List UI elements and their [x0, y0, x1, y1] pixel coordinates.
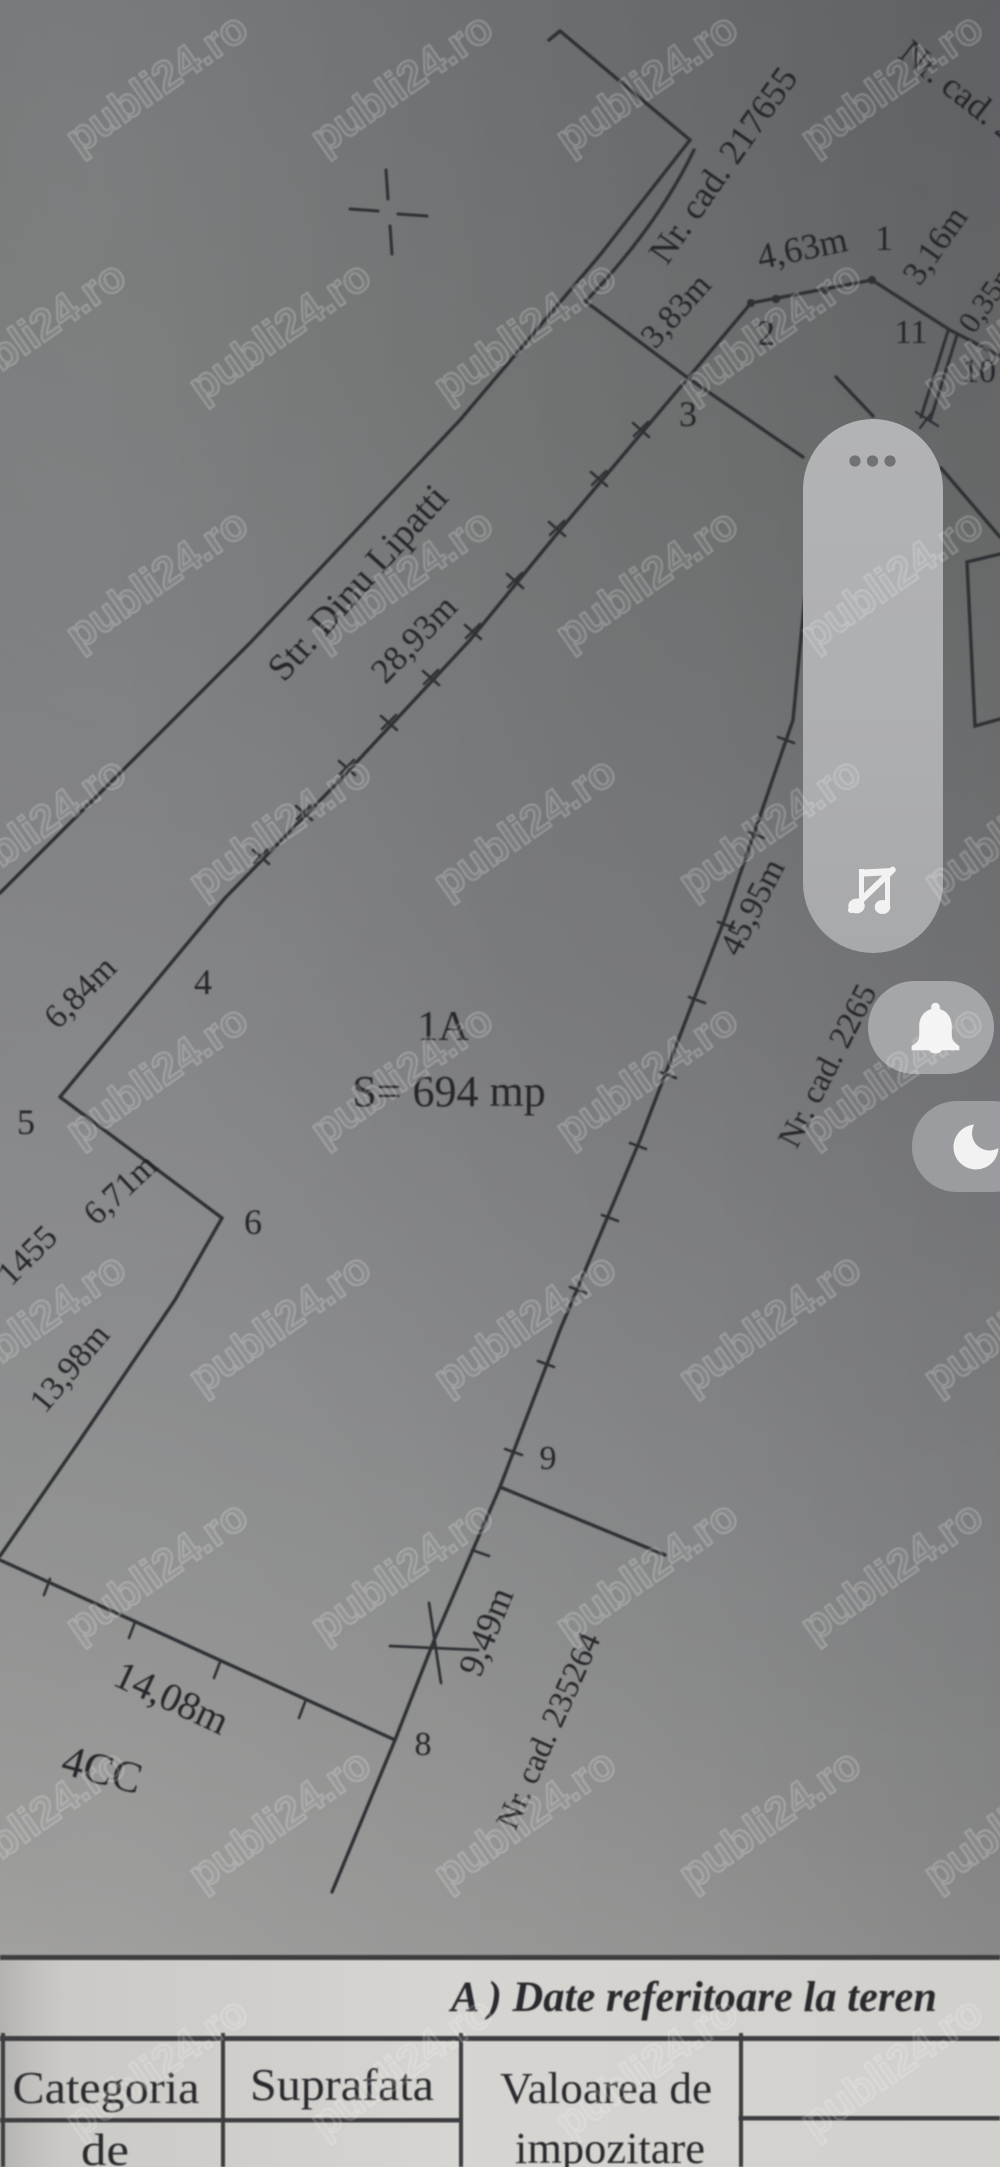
svg-text:5: 5: [17, 1102, 35, 1142]
svg-text:6: 6: [244, 1202, 262, 1242]
svg-text:1: 1: [875, 218, 893, 258]
svg-text:9: 9: [540, 1440, 557, 1477]
svg-text:impozitare: impozitare: [515, 2124, 705, 2167]
svg-text:4: 4: [194, 962, 212, 1002]
svg-text:8: 8: [415, 1726, 432, 1763]
svg-text:11: 11: [895, 314, 928, 351]
